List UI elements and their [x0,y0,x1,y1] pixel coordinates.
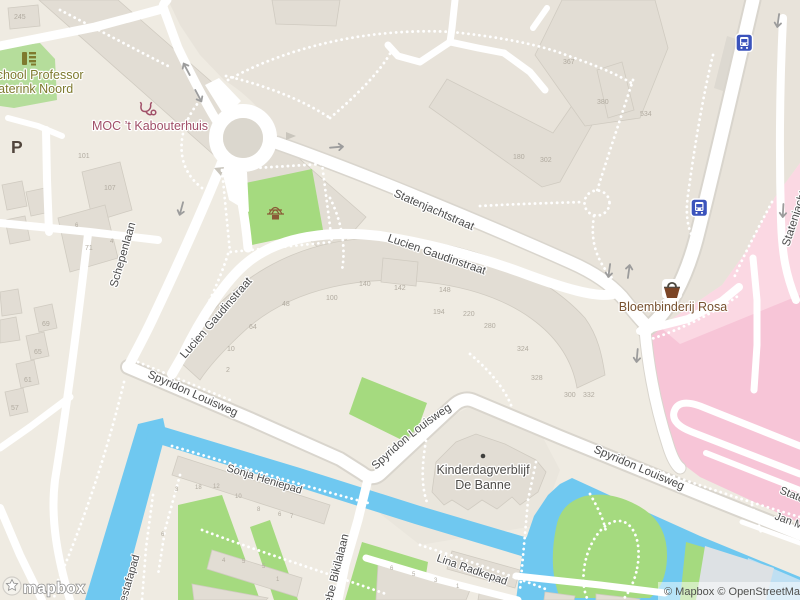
svg-text:328: 328 [531,375,543,382]
svg-text:180: 180 [513,154,525,161]
svg-text:142: 142 [394,285,406,292]
svg-text:57: 57 [11,405,19,412]
svg-text:220: 220 [463,311,475,318]
svg-text:367: 367 [563,59,575,66]
svg-text:302: 302 [540,157,552,164]
svg-text:148: 148 [439,287,451,294]
svg-text:101: 101 [78,153,90,160]
svg-text:64: 64 [249,324,257,331]
svg-text:194: 194 [433,309,445,316]
svg-text:mapbox: mapbox [23,580,85,597]
svg-text:71: 71 [85,245,93,252]
svg-text:300: 300 [564,392,576,399]
svg-text:10: 10 [235,494,242,500]
svg-text:School ProfessorWaterink Noord: School ProfessorWaterink Noord [0,68,84,96]
svg-text:280: 280 [484,323,496,330]
svg-text:100: 100 [326,295,338,302]
svg-text:2: 2 [226,367,230,374]
svg-text:65: 65 [34,349,42,356]
svg-text:140: 140 [359,281,371,288]
svg-text:48: 48 [282,301,290,308]
svg-text:MOC ’t Kabouterhuis: MOC ’t Kabouterhuis [92,119,208,133]
svg-text:P: P [11,137,23,157]
svg-text:10: 10 [227,346,235,353]
svg-text:534: 534 [640,111,652,118]
svg-text:245: 245 [14,14,26,21]
svg-text:380: 380 [597,99,609,106]
svg-text:324: 324 [517,346,529,353]
svg-text:© Mapbox © OpenStreetMap: © Mapbox © OpenStreetMap [664,586,800,598]
svg-text:107: 107 [104,185,116,192]
svg-text:69: 69 [42,321,50,328]
svg-text:332: 332 [583,392,595,399]
svg-text:18: 18 [195,485,202,491]
svg-text:61: 61 [24,377,32,384]
svg-text:Bloembinderij Rosa: Bloembinderij Rosa [619,300,727,314]
svg-text:12: 12 [213,484,220,490]
